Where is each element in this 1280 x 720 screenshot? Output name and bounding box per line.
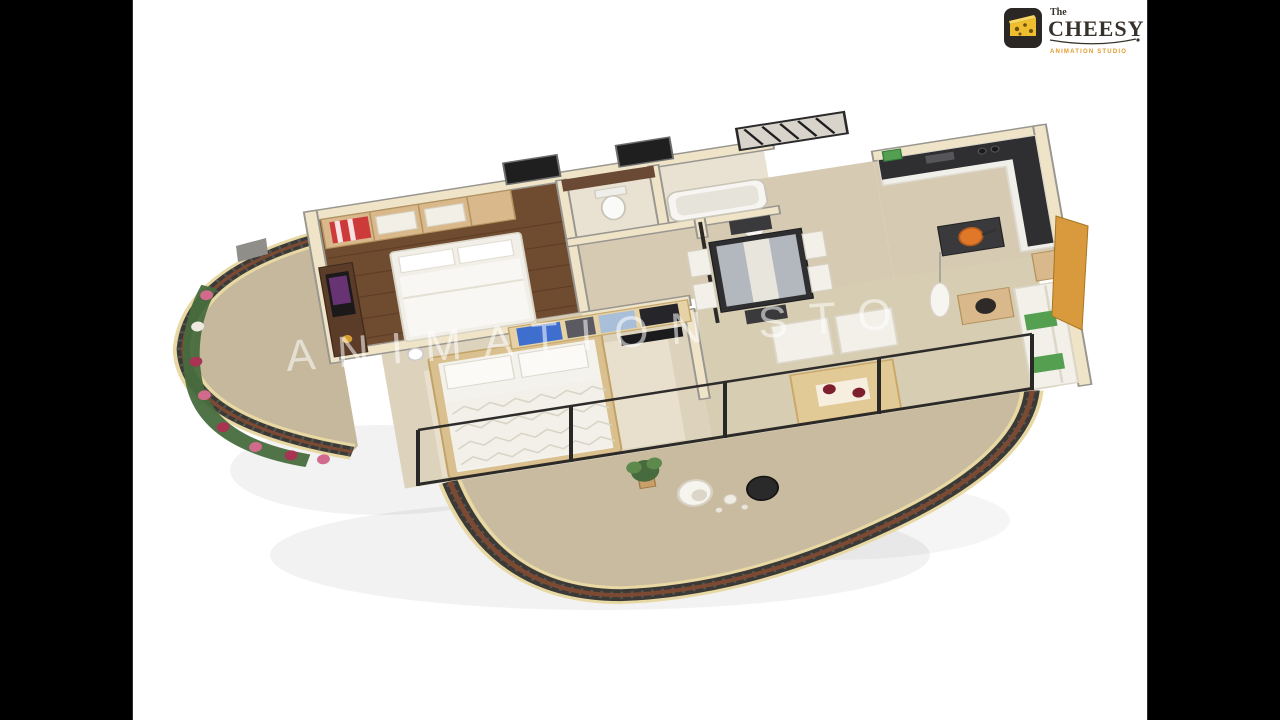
- floorplan-render: [0, 0, 1280, 720]
- logo-tagline-text: ANIMATION STUDIO: [1050, 49, 1144, 55]
- master-bed: [390, 232, 536, 342]
- video-frame: ANIMATION STO The CHEESY ANIMATION STUDI…: [0, 0, 1280, 720]
- letterbox-right: [1147, 0, 1280, 720]
- lounge-chair: [835, 308, 898, 354]
- cheese-wedge: [1007, 12, 1039, 44]
- logo-swoosh: [1048, 37, 1144, 47]
- letterbox-left: [0, 0, 133, 720]
- dining-chair: [808, 264, 833, 292]
- dining-chair: [802, 231, 827, 259]
- dining-chair: [687, 249, 712, 277]
- dining-chair: [693, 282, 718, 310]
- lounge-chair: [771, 318, 834, 364]
- amber-door-panel: [1052, 216, 1088, 330]
- green-appliance: [882, 149, 902, 162]
- logo-text-block: The CHEESY ANIMATION STUDIO: [1048, 8, 1144, 55]
- cheese-logo-icon: [1004, 8, 1042, 48]
- hatched-window: [736, 112, 847, 150]
- brand-logo: The CHEESY ANIMATION STUDIO: [1004, 8, 1144, 55]
